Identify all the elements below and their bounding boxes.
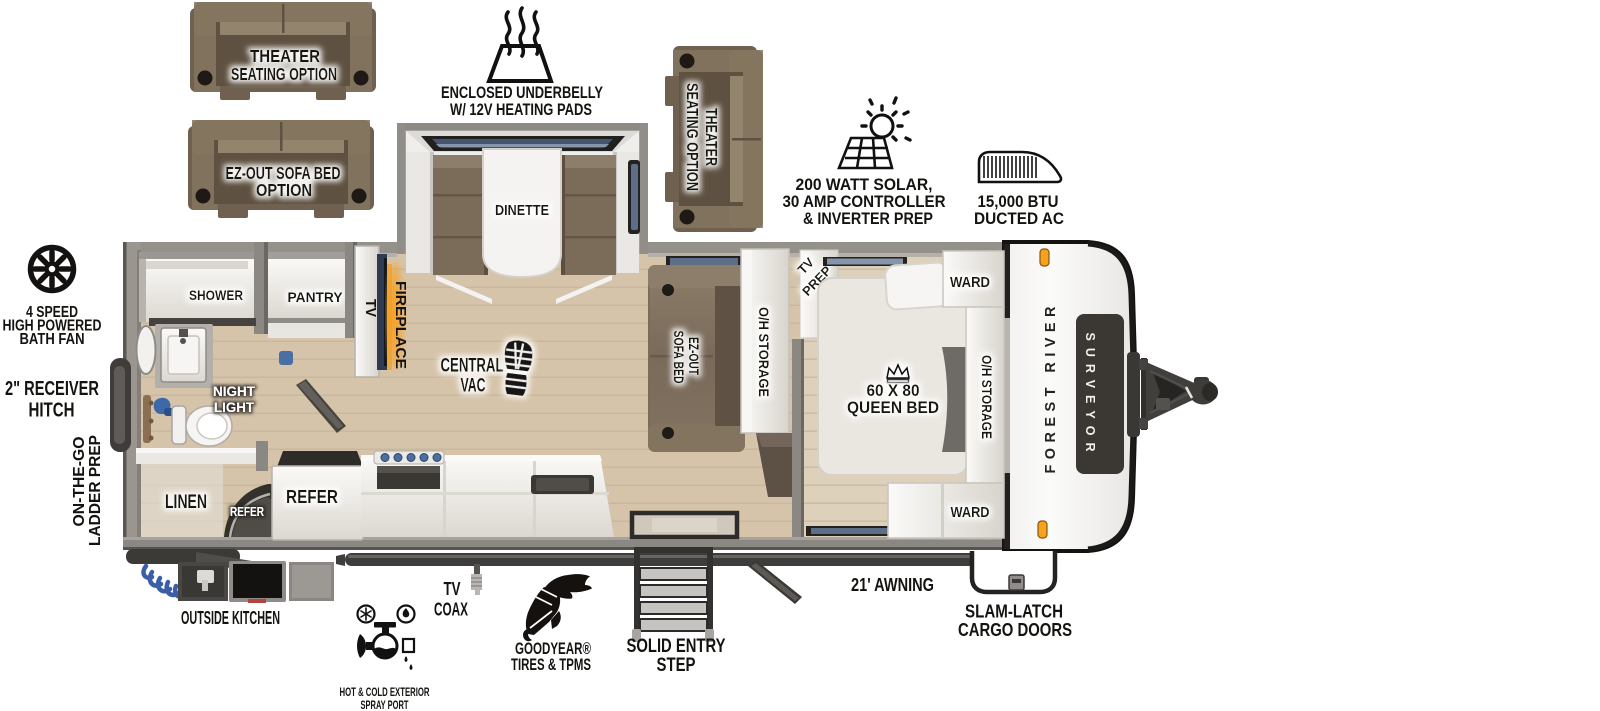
svg-text:HITCH: HITCH xyxy=(29,400,75,422)
svg-text:WARD: WARD xyxy=(951,504,990,521)
svg-text:SHOWER: SHOWER xyxy=(189,288,243,303)
svg-text:EZ-OUT: EZ-OUT xyxy=(686,337,701,376)
svg-text:O/H STORAGE: O/H STORAGE xyxy=(979,355,995,439)
svg-text:REFER: REFER xyxy=(286,487,338,507)
svg-text:O/H STORAGE: O/H STORAGE xyxy=(756,307,772,397)
svg-text:REFER: REFER xyxy=(230,504,264,519)
svg-text:THEATER: THEATER xyxy=(702,108,719,166)
svg-text:SEATING OPTION: SEATING OPTION xyxy=(231,64,337,84)
svg-text:WARD: WARD xyxy=(950,274,990,291)
svg-text:CARGO DOORS: CARGO DOORS xyxy=(958,619,1072,640)
svg-text:FIREPLACE: FIREPLACE xyxy=(392,281,409,369)
svg-text:SEATING OPTION: SEATING OPTION xyxy=(683,83,700,191)
svg-text:ON-THE-GO: ON-THE-GO xyxy=(71,437,88,527)
svg-text:LADDER PREP: LADDER PREP xyxy=(87,435,104,546)
svg-text:LINEN: LINEN xyxy=(165,492,207,513)
svg-text:DINETTE: DINETTE xyxy=(495,203,549,219)
svg-text:LIGHT: LIGHT xyxy=(214,399,254,415)
svg-text:VAC: VAC xyxy=(461,376,486,397)
svg-text:TV: TV xyxy=(362,299,379,317)
svg-text:SOFA BED: SOFA BED xyxy=(671,331,686,384)
svg-text:COAX: COAX xyxy=(434,600,468,620)
svg-text:SPRAY PORT: SPRAY PORT xyxy=(361,698,409,711)
svg-text:FOREST RIVER: FOREST RIVER xyxy=(1043,306,1059,474)
svg-text:BATH FAN: BATH FAN xyxy=(20,331,85,348)
svg-text:W/ 12V HEATING PADS: W/ 12V HEATING PADS xyxy=(450,101,592,119)
svg-text:SOLID ENTRY: SOLID ENTRY xyxy=(627,636,726,657)
svg-text:OUTSIDE KITCHEN: OUTSIDE KITCHEN xyxy=(181,608,280,628)
svg-text:HOT & COLD EXTERIOR: HOT & COLD EXTERIOR xyxy=(340,685,430,699)
svg-text:QUEEN BED: QUEEN BED xyxy=(847,398,939,417)
svg-text:NIGHT: NIGHT xyxy=(213,383,255,399)
svg-text:ENCLOSED UNDERBELLY: ENCLOSED UNDERBELLY xyxy=(441,84,603,102)
svg-text:OPTION: OPTION xyxy=(256,180,312,200)
svg-text:TIRES & TPMS: TIRES & TPMS xyxy=(511,656,591,674)
svg-text:THEATER: THEATER xyxy=(250,46,320,66)
svg-text:STEP: STEP xyxy=(657,655,696,676)
svg-text:2" RECEIVER: 2" RECEIVER xyxy=(5,378,99,400)
svg-text:PANTRY: PANTRY xyxy=(288,290,343,305)
svg-text:CENTRAL: CENTRAL xyxy=(441,356,504,377)
svg-text:DUCTED AC: DUCTED AC xyxy=(974,209,1064,228)
svg-text:& INVERTER PREP: & INVERTER PREP xyxy=(803,209,933,228)
svg-text:TV: TV xyxy=(444,579,461,599)
svg-text:21' AWNING: 21' AWNING xyxy=(851,575,934,595)
